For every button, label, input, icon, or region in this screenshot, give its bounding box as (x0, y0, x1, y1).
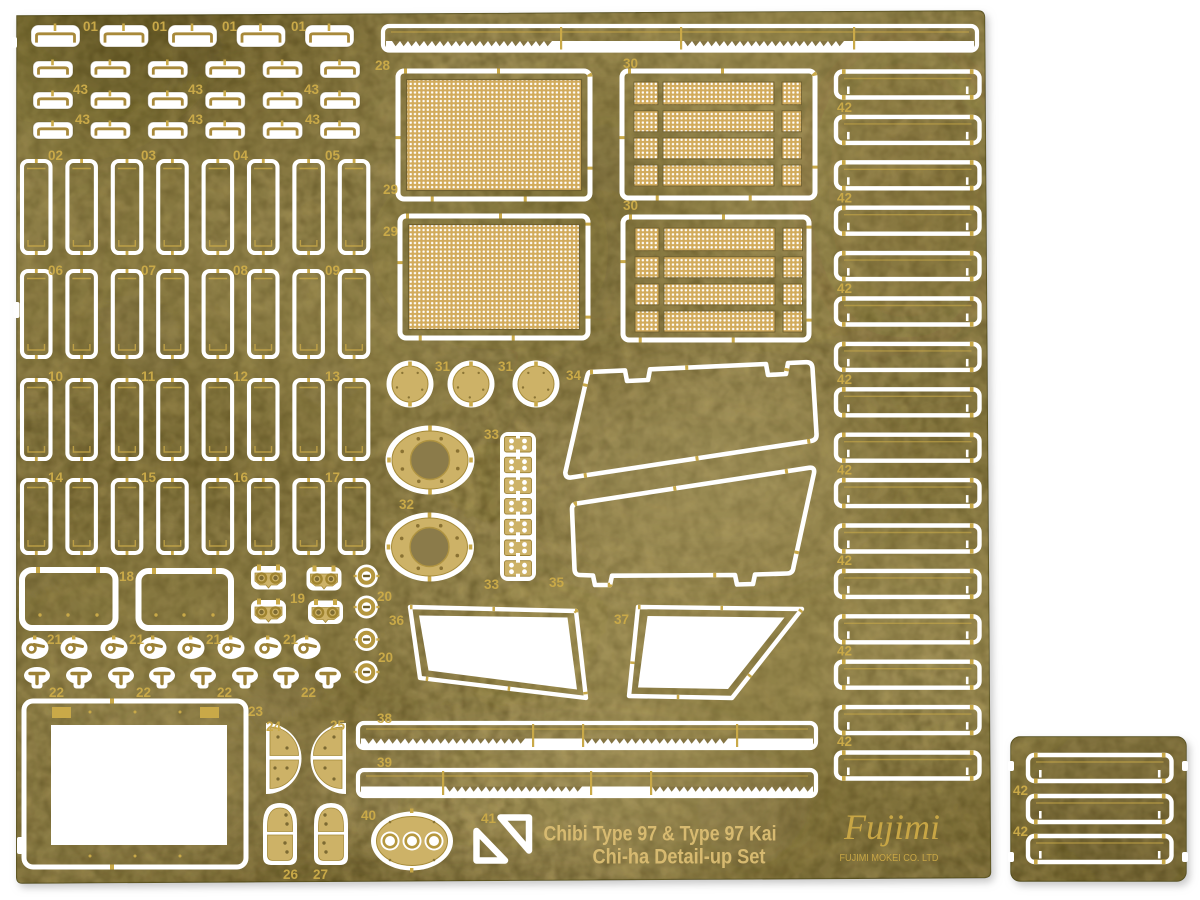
svg-text:12: 12 (233, 369, 248, 384)
svg-text:09: 09 (325, 263, 340, 278)
svg-text:20: 20 (378, 650, 393, 665)
svg-text:41: 41 (481, 811, 497, 826)
svg-text:01: 01 (291, 19, 307, 34)
svg-text:36: 36 (389, 613, 405, 628)
svg-text:29: 29 (383, 182, 398, 197)
svg-text:08: 08 (233, 263, 249, 278)
svg-text:Fujimi: Fujimi (843, 807, 940, 847)
svg-text:42: 42 (837, 191, 852, 206)
svg-text:21: 21 (129, 632, 145, 647)
svg-text:43: 43 (188, 112, 204, 127)
svg-text:22: 22 (136, 685, 151, 700)
svg-text:01: 01 (83, 19, 99, 34)
svg-text:Chibi Type 97 & Type 97 Kai: Chibi Type 97 & Type 97 Kai (544, 822, 777, 846)
svg-text:17: 17 (325, 470, 340, 485)
svg-text:42: 42 (1013, 824, 1028, 839)
svg-text:FUJIMI MOKEI CO. LTD: FUJIMI MOKEI CO. LTD (840, 853, 939, 864)
svg-text:43: 43 (73, 82, 89, 97)
svg-text:11: 11 (141, 369, 156, 384)
svg-text:43: 43 (304, 82, 320, 97)
svg-text:23: 23 (248, 704, 264, 719)
svg-text:26: 26 (283, 867, 299, 882)
svg-text:21: 21 (283, 632, 299, 647)
svg-text:Chi-ha Detail-up Set: Chi-ha Detail-up Set (593, 845, 766, 869)
svg-text:35: 35 (549, 575, 565, 590)
svg-text:05: 05 (325, 148, 341, 163)
svg-text:20: 20 (377, 589, 392, 604)
svg-text:30: 30 (623, 198, 638, 213)
svg-text:42: 42 (837, 100, 852, 115)
svg-text:22: 22 (301, 685, 316, 700)
svg-text:42: 42 (837, 281, 852, 296)
svg-text:28: 28 (375, 58, 391, 73)
svg-text:22: 22 (217, 685, 232, 700)
svg-text:40: 40 (361, 808, 376, 823)
svg-text:15: 15 (141, 470, 157, 485)
svg-text:30: 30 (623, 56, 638, 71)
svg-text:24: 24 (266, 719, 282, 734)
svg-text:38: 38 (377, 711, 393, 726)
svg-text:13: 13 (325, 369, 341, 384)
svg-text:32: 32 (399, 497, 414, 512)
svg-text:43: 43 (75, 112, 91, 127)
svg-text:22: 22 (49, 685, 64, 700)
svg-text:01: 01 (152, 19, 168, 34)
svg-text:43: 43 (188, 82, 204, 97)
svg-text:34: 34 (566, 368, 582, 383)
svg-text:04: 04 (233, 148, 249, 163)
svg-text:10: 10 (48, 369, 63, 384)
svg-text:02: 02 (48, 148, 63, 163)
svg-text:33: 33 (484, 427, 500, 442)
svg-text:03: 03 (141, 148, 157, 163)
svg-text:42: 42 (837, 734, 852, 749)
svg-text:29: 29 (383, 224, 398, 239)
svg-text:21: 21 (206, 632, 222, 647)
svg-text:42: 42 (837, 372, 852, 387)
svg-text:42: 42 (1013, 783, 1028, 798)
svg-text:19: 19 (290, 591, 305, 606)
svg-text:27: 27 (313, 867, 328, 882)
svg-text:21: 21 (47, 632, 63, 647)
svg-text:16: 16 (233, 470, 249, 485)
svg-text:25: 25 (330, 718, 346, 733)
svg-text:37: 37 (614, 612, 629, 627)
svg-text:31: 31 (498, 359, 514, 374)
svg-text:39: 39 (377, 755, 392, 770)
svg-text:07: 07 (141, 263, 156, 278)
svg-text:42: 42 (837, 462, 852, 477)
svg-text:06: 06 (48, 263, 64, 278)
svg-text:42: 42 (837, 553, 852, 568)
svg-text:33: 33 (484, 577, 500, 592)
svg-text:18: 18 (119, 569, 135, 584)
svg-text:42: 42 (837, 644, 852, 659)
svg-text:43: 43 (305, 112, 321, 127)
svg-text:01: 01 (222, 19, 238, 34)
svg-text:31: 31 (435, 359, 451, 374)
svg-text:14: 14 (48, 470, 64, 485)
